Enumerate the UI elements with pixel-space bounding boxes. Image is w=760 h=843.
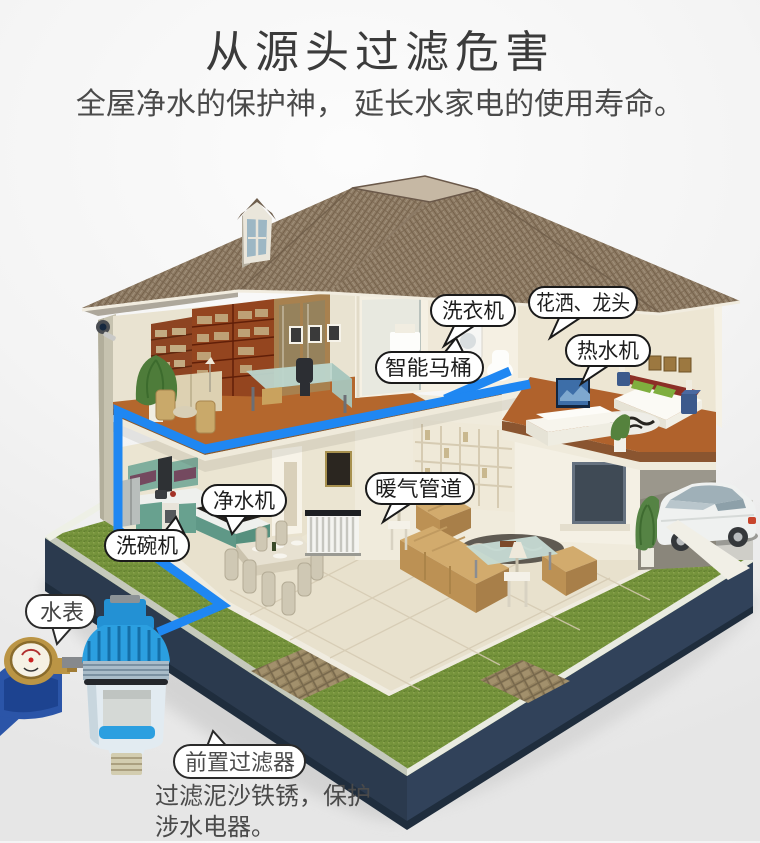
svg-text:热水机: 热水机 xyxy=(577,340,639,363)
svg-text:洗碗机: 洗碗机 xyxy=(116,535,178,558)
svg-text:净水机: 净水机 xyxy=(213,490,275,513)
svg-text:暖气管道: 暖气管道 xyxy=(375,478,462,501)
svg-text:智能马桶: 智能马桶 xyxy=(385,357,472,380)
svg-text:水表: 水表 xyxy=(40,600,84,625)
svg-text:前置过滤器: 前置过滤器 xyxy=(185,750,295,775)
svg-text:花洒、龙头: 花洒、龙头 xyxy=(536,292,630,315)
svg-text:洗衣机: 洗衣机 xyxy=(442,300,504,323)
